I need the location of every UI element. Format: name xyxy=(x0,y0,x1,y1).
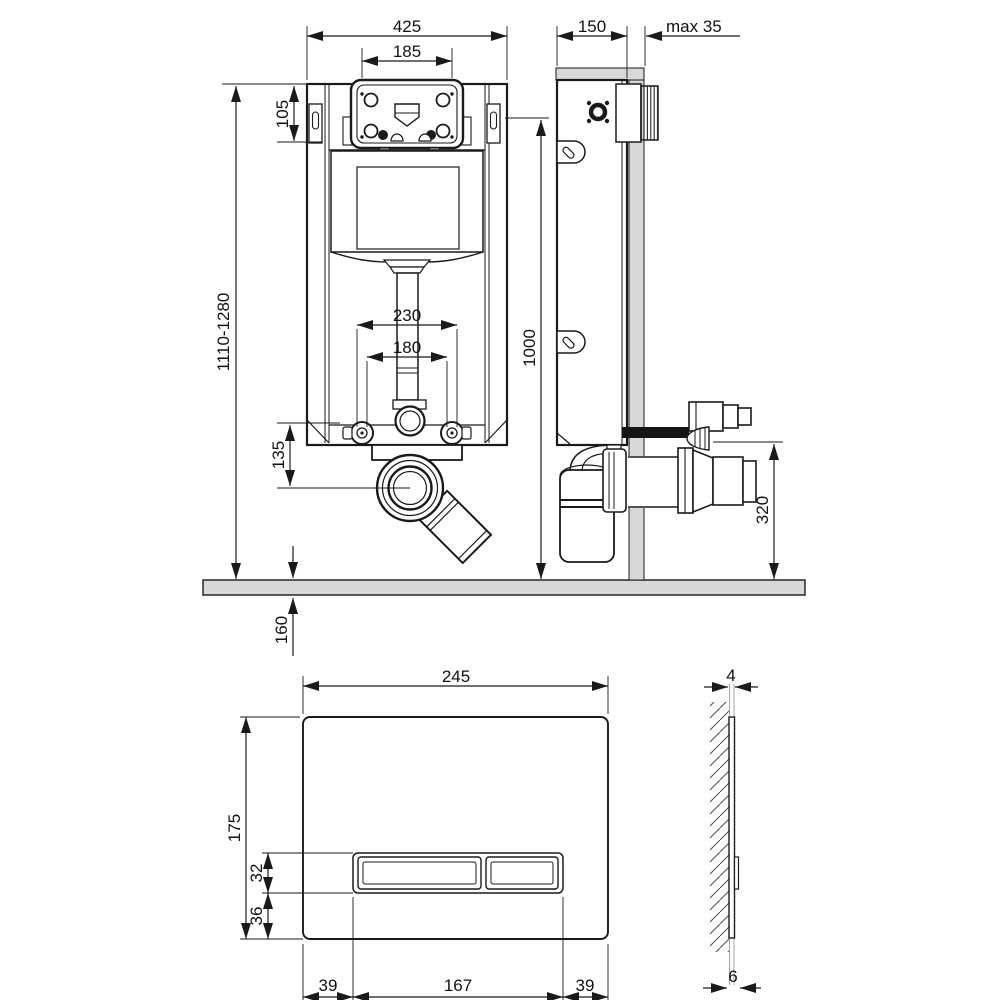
button-profile xyxy=(735,857,739,889)
mounting-tab-upper xyxy=(557,141,585,163)
waste-wall-connector xyxy=(628,448,756,513)
dim-plate-margin-right: 39 xyxy=(576,976,595,995)
flush-button-large xyxy=(358,857,481,889)
technical-drawing: 425 185 105 1110-1280 230 180 135 160 xyxy=(0,0,1000,1000)
top-wall-band xyxy=(556,68,644,80)
supply-rod xyxy=(622,427,689,438)
dim-total-depth: 6 xyxy=(728,967,737,986)
dim-inspection-box-width: 185 xyxy=(393,42,421,61)
dim-plate-margin-left: 39 xyxy=(319,976,338,995)
floor-section xyxy=(203,580,805,595)
dim-inspection-box-height: 105 xyxy=(273,100,292,128)
frame-side-view xyxy=(556,68,756,580)
dim-frame-depth: 150 xyxy=(578,17,606,36)
dim-frame-width: 425 xyxy=(393,17,421,36)
dim-buttons-span: 167 xyxy=(444,976,472,995)
waste-outlet-socket xyxy=(277,455,443,521)
waste-elbow xyxy=(560,445,626,562)
dim-plate-width: 245 xyxy=(442,667,470,686)
dim-panel-thickness: 4 xyxy=(726,666,735,685)
box-hole-bottom-right xyxy=(437,125,450,138)
shaft-protector xyxy=(641,86,658,140)
dim-plate-height: 175 xyxy=(225,814,244,842)
box-bolt-left xyxy=(378,130,388,140)
hanger-tab-right xyxy=(487,104,500,143)
dim-outlet-spacing-inner: 180 xyxy=(393,338,421,357)
box-hole-top-left xyxy=(365,94,378,107)
flush-plate-front-view xyxy=(303,717,608,939)
box-hole-bottom-left xyxy=(365,125,378,138)
actuation-shaft xyxy=(616,84,658,142)
flush-button-small xyxy=(486,857,558,889)
dim-frame-height-range: 1110-1280 xyxy=(214,293,233,372)
dim-waste-connection-height: 320 xyxy=(753,496,772,524)
mounting-tab-lower xyxy=(557,331,585,353)
floor-band xyxy=(203,580,805,595)
hanger-tab-left xyxy=(309,104,322,143)
dim-wall-finish-max: max 35 xyxy=(666,17,722,36)
wall-hatch xyxy=(710,702,729,952)
dim-below-floor-depth: 160 xyxy=(272,616,291,644)
dim-button-height: 32 xyxy=(247,864,266,883)
dim-outlet-spacing-outer: 230 xyxy=(393,306,421,325)
cistern-panel xyxy=(357,167,459,249)
plate-profile xyxy=(729,717,735,938)
drawing-canvas: 425 185 105 1110-1280 230 180 135 160 xyxy=(0,0,1000,1000)
box-hole-top-right xyxy=(437,94,450,107)
dim-outlet-center-height: 135 xyxy=(269,441,288,469)
flush-plate xyxy=(303,717,608,939)
dim-button-bottom-offset: 36 xyxy=(247,907,266,926)
flush-plate-side-view xyxy=(710,684,739,985)
dim-actuation-height: 1000 xyxy=(520,329,539,367)
inspection-box xyxy=(351,80,463,155)
